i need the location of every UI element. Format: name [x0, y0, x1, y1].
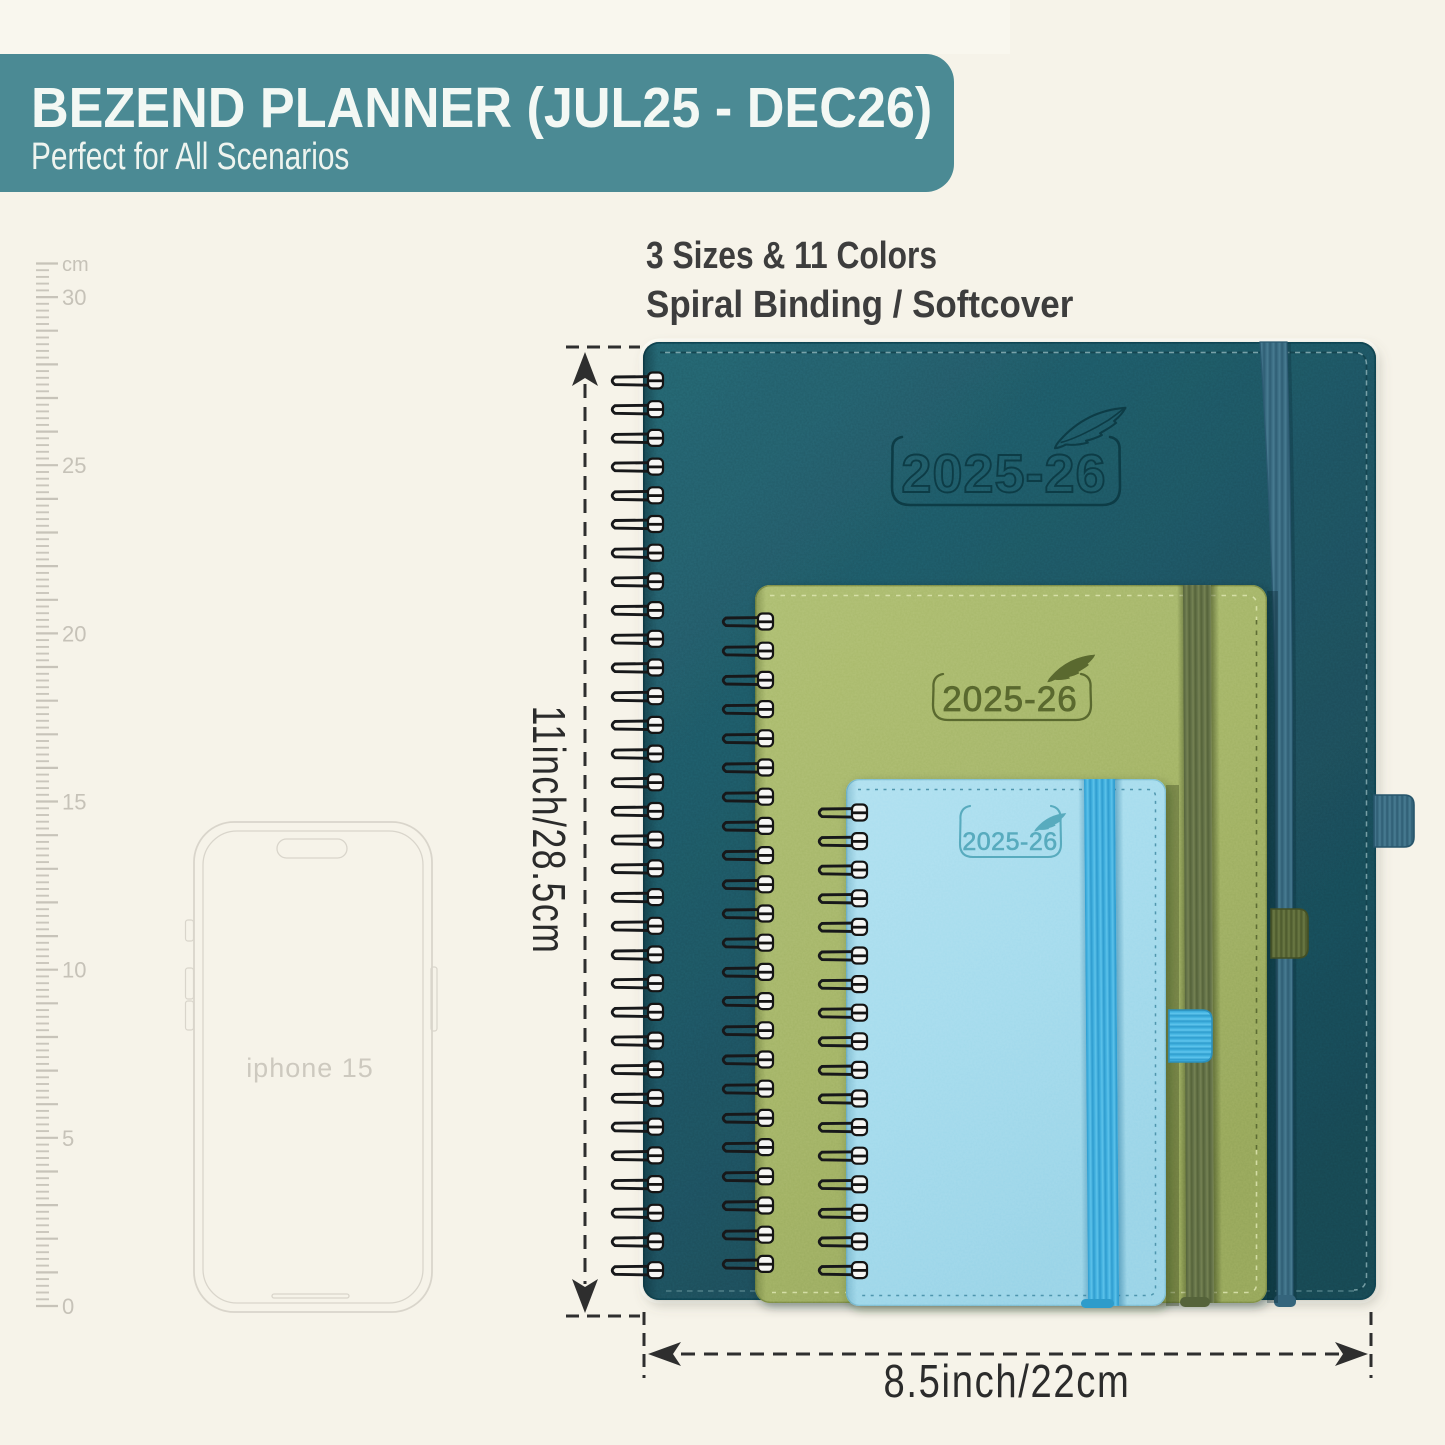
svg-text:2025-26: 2025-26 [942, 680, 1077, 719]
svg-text:10: 10 [62, 958, 86, 983]
svg-text:2025-26: 2025-26 [962, 828, 1057, 856]
svg-text:20: 20 [62, 621, 86, 646]
svg-text:2025-26: 2025-26 [901, 444, 1106, 504]
svg-text:25: 25 [62, 453, 86, 478]
svg-text:iphone 15: iphone 15 [246, 1053, 374, 1083]
svg-text:5: 5 [62, 1126, 74, 1151]
svg-text:cm: cm [62, 254, 89, 276]
svg-text:0: 0 [62, 1294, 74, 1319]
svg-text:30: 30 [62, 285, 86, 310]
svg-text:15: 15 [62, 790, 86, 815]
